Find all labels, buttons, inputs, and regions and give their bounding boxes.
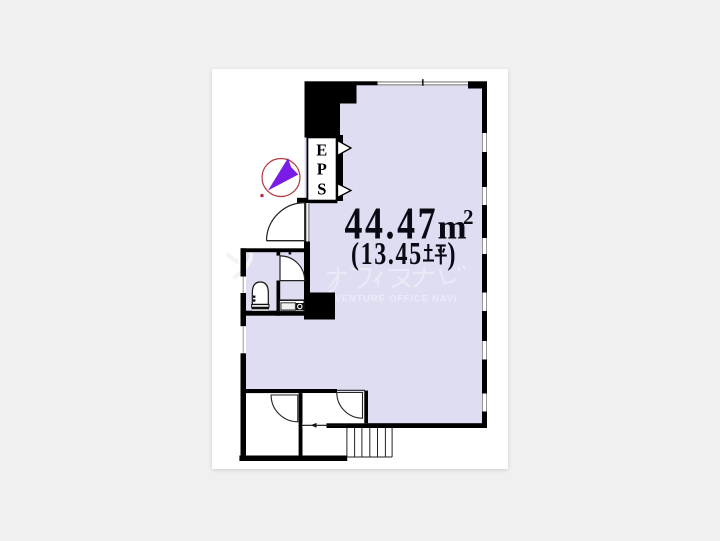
svg-text:P: P <box>317 160 327 179</box>
svg-text:E: E <box>316 141 327 160</box>
svg-text:(13.45: (13.45 <box>351 237 423 272</box>
svg-text:): ) <box>448 237 456 272</box>
svg-text:2: 2 <box>463 205 474 229</box>
svg-text:S: S <box>317 180 326 199</box>
svg-text:VENTURE OFFICE NAVI: VENTURE OFFICE NAVI <box>335 294 458 305</box>
